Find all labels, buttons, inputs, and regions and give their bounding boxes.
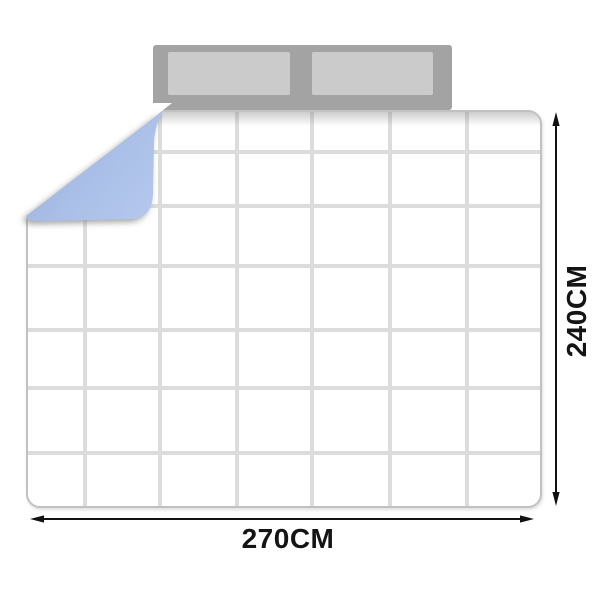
headboard [153,45,452,110]
quilt-cell [162,390,235,451]
quilt-cell [314,268,388,328]
quilt-cell [392,455,465,506]
quilt-cell [162,455,235,506]
quilt-cell [28,112,83,150]
pillow-right [312,52,433,95]
arrowhead-left [30,515,44,522]
quilt-cell [162,208,235,264]
quilt-cell [87,208,158,264]
quilt-cell [28,332,83,386]
quilt-cell [239,268,310,328]
quilt-cell [469,455,540,506]
quilt-cell [162,332,235,386]
quilt-cell [392,332,465,386]
quilt-cell [28,455,83,506]
height-arrow [552,112,559,506]
quilt-cell [162,268,235,328]
quilt-cell [314,332,388,386]
quilt-cell [314,390,388,451]
quilt-cell [87,390,158,451]
quilt-cell [239,390,310,451]
quilt-cell [162,154,235,204]
quilt-cell [87,268,158,328]
quilt-cell [87,455,158,506]
quilt-cell [469,112,540,150]
quilt-cell [239,455,310,506]
arrowhead-down [552,492,559,506]
quilt-cell [87,154,158,204]
quilt-cell [162,112,235,150]
quilt-cell [314,112,388,150]
quilt-cell [28,390,83,451]
quilt-cell [392,112,465,150]
quilt-cell [239,154,310,204]
quilt-cell [28,268,83,328]
quilt-cell [28,154,83,204]
quilt-cell [239,332,310,386]
quilt-cell [469,208,540,264]
quilt-cell [469,154,540,204]
height-label: 240CM [562,211,592,411]
quilt-cell [239,208,310,264]
quilt [26,110,542,508]
quilt-cell [392,154,465,204]
quilt-cell [392,208,465,264]
quilt-cell [314,208,388,264]
width-label: 270CM [188,523,388,555]
bedding-size-diagram: 270CM 240CM [0,0,600,600]
quilt-cell [392,390,465,451]
width-arrow [30,515,534,522]
arrowhead-right [520,515,534,522]
quilt-cell [239,112,310,150]
quilt-cell [314,455,388,506]
pillow-left [168,52,290,95]
quilt-cell [314,154,388,204]
quilt-cell [392,268,465,328]
quilt-cell [87,332,158,386]
quilt-cell [469,332,540,386]
quilt-cell [87,112,158,150]
quilt-cell [469,268,540,328]
quilt-cell [28,208,83,264]
quilt-cell [469,390,540,451]
arrowhead-up [552,112,559,126]
